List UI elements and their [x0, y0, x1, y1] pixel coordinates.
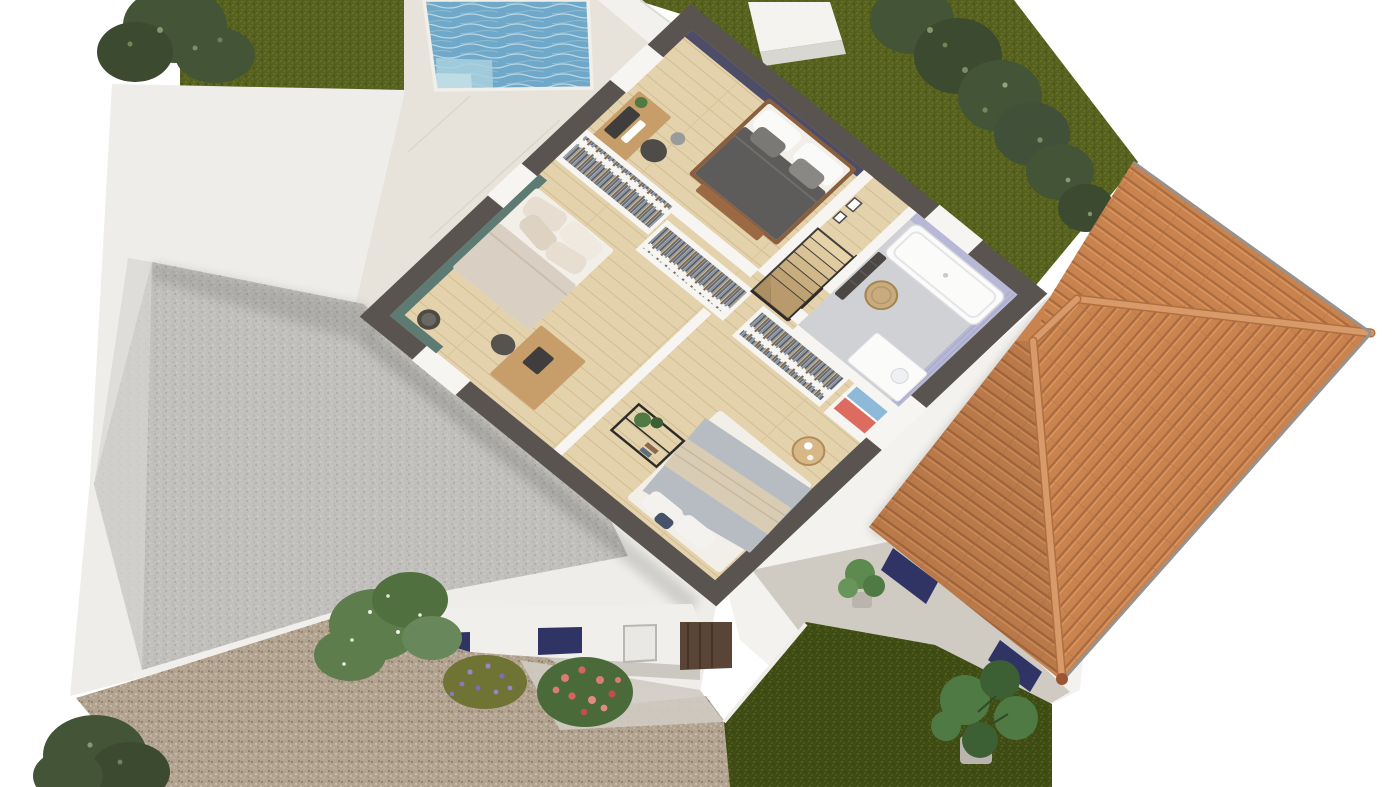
scene-canvas: upper lawn stone pool deck swimming pool… — [0, 0, 1400, 787]
floorplan-render: upper lawn stone pool deck swimming pool… — [0, 0, 1400, 787]
white-window — [624, 625, 656, 662]
pool-step-2 — [436, 73, 472, 90]
rose-bush — [537, 657, 633, 727]
navy-window-2 — [538, 627, 582, 655]
lavender-bush — [443, 655, 527, 709]
swimming-pool: swimming pool with corner steps — [424, 0, 592, 90]
roof-finial — [1056, 673, 1068, 685]
